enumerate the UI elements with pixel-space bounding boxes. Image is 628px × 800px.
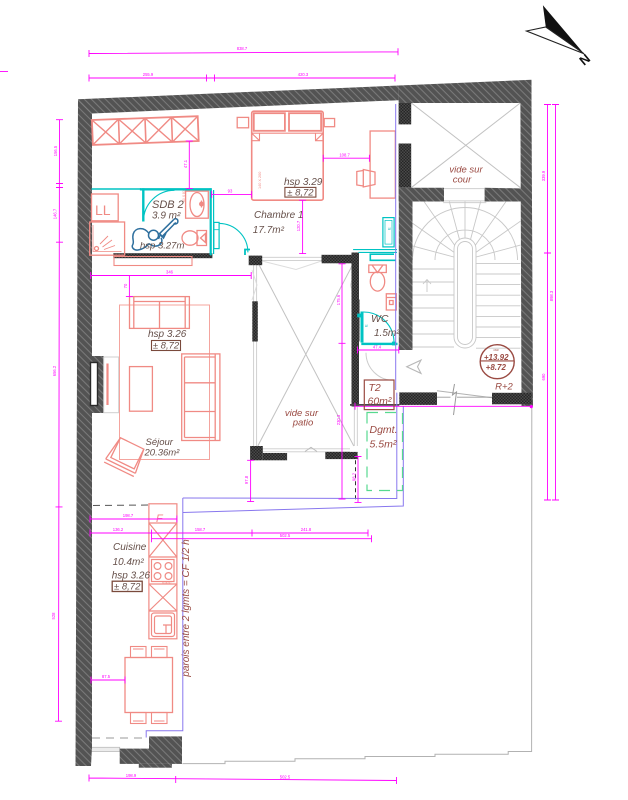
svg-text:R+2: R+2 <box>495 382 513 393</box>
svg-text:Séjour: Séjour <box>146 437 174 448</box>
svg-text:339.9: 339.9 <box>541 170 546 181</box>
svg-text:198.7: 198.7 <box>123 513 134 518</box>
svg-text:WC: WC <box>371 313 389 325</box>
svg-text:Dgmt.: Dgmt. <box>370 424 398 436</box>
svg-text:528: 528 <box>51 612 56 620</box>
svg-text:T2: T2 <box>369 382 381 394</box>
svg-text:cour: cour <box>453 175 472 186</box>
svg-text:108.7: 108.7 <box>339 152 350 157</box>
svg-text:N: N <box>576 51 593 69</box>
svg-text:420.3: 420.3 <box>298 72 309 77</box>
svg-text:70: 70 <box>123 283 128 288</box>
svg-text:parois entre 2 lgmts = CF 1/2: parois entre 2 lgmts = CF 1/2 h <box>181 539 192 678</box>
svg-text:502.5: 502.5 <box>280 533 291 538</box>
svg-text:10.4m²: 10.4m² <box>113 557 145 568</box>
svg-text:+13.92: +13.92 <box>484 353 509 362</box>
svg-text:E: E <box>364 324 369 327</box>
svg-text:198.9: 198.9 <box>126 773 137 778</box>
svg-text:hsp 3.26: hsp 3.26 <box>112 571 151 582</box>
svg-text:20.36m²: 20.36m² <box>144 448 181 459</box>
svg-text:hsp 3.29: hsp 3.29 <box>284 177 323 188</box>
svg-text:158.7: 158.7 <box>195 527 206 532</box>
svg-text:241.8: 241.8 <box>301 527 312 532</box>
svg-text:5.5m²: 5.5m² <box>370 439 397 451</box>
svg-text:Chambre 1: Chambre 1 <box>254 210 303 221</box>
svg-text:136.2: 136.2 <box>113 527 124 532</box>
svg-text:17.7m²: 17.7m² <box>253 225 285 236</box>
svg-text:47.1: 47.1 <box>183 159 188 168</box>
svg-text:175.6: 175.6 <box>336 294 341 305</box>
svg-text:346: 346 <box>166 270 174 275</box>
svg-text:502.5: 502.5 <box>280 775 291 780</box>
svg-text:± 8,72: ± 8,72 <box>114 582 141 593</box>
svg-text:NGF: NGF <box>493 348 499 352</box>
svg-text:1.5m²: 1.5m² <box>374 328 400 339</box>
svg-text:3.9 m²: 3.9 m² <box>152 211 181 222</box>
svg-text:97.8: 97.8 <box>244 475 249 484</box>
svg-text:93: 93 <box>228 189 233 194</box>
svg-text:patio: patio <box>292 418 314 429</box>
svg-text:47.4: 47.4 <box>373 344 382 349</box>
svg-text:656.2: 656.2 <box>52 365 57 376</box>
svg-text:SDB 2: SDB 2 <box>152 199 184 211</box>
svg-text:156.5: 156.5 <box>53 145 58 156</box>
svg-text:hsp 3.26: hsp 3.26 <box>148 329 187 340</box>
svg-text:60m²: 60m² <box>368 396 392 408</box>
svg-text:± 8,72: ± 8,72 <box>287 187 314 198</box>
svg-text:898.3: 898.3 <box>549 290 554 301</box>
svg-text:146.7: 146.7 <box>53 208 58 219</box>
svg-text:120.7: 120.7 <box>296 220 301 231</box>
svg-text:LL: LL <box>95 202 111 218</box>
svg-text:E: E <box>387 227 392 230</box>
svg-text:60X60: 60X60 <box>162 581 171 585</box>
svg-text:87.5: 87.5 <box>102 674 111 679</box>
svg-text:± 8,72: ± 8,72 <box>153 341 180 352</box>
svg-text:255.9: 255.9 <box>143 72 154 77</box>
svg-text:690: 690 <box>541 373 546 381</box>
svg-text:+8.72: +8.72 <box>486 363 507 372</box>
svg-text:230.3: 230.3 <box>336 414 341 425</box>
svg-text:838.7: 838.7 <box>237 46 248 51</box>
svg-text:hsp 3.27m: hsp 3.27m <box>140 241 184 252</box>
svg-text:140 X 200: 140 X 200 <box>258 172 262 189</box>
svg-text:98.2: 98.2 <box>352 472 357 481</box>
svg-text:Cuisine: Cuisine <box>113 542 147 553</box>
